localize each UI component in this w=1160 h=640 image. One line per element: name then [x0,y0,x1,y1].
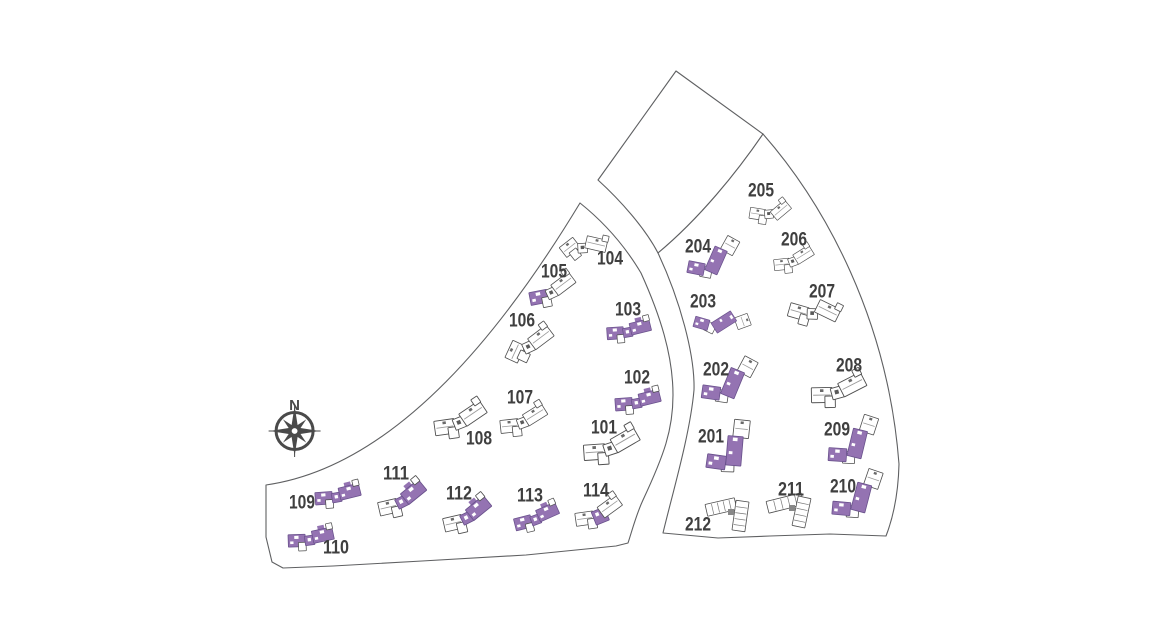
svg-text:201: 201 [698,427,724,448]
svg-text:103: 103 [615,300,641,321]
svg-text:111: 111 [383,464,409,485]
svg-text:210: 210 [830,477,856,498]
svg-text:212: 212 [685,515,711,536]
svg-text:204: 204 [685,237,711,258]
svg-text:104: 104 [597,249,623,270]
svg-text:203: 203 [690,292,716,313]
svg-text:206: 206 [781,230,807,251]
svg-text:107: 107 [507,388,533,409]
svg-text:205: 205 [748,181,774,202]
svg-text:209: 209 [824,420,850,441]
svg-text:102: 102 [624,368,650,389]
svg-text:109: 109 [289,493,315,514]
svg-text:112: 112 [446,484,472,505]
svg-text:113: 113 [517,486,543,507]
svg-text:110: 110 [323,538,349,559]
svg-text:101: 101 [591,418,617,439]
svg-text:105: 105 [541,262,567,283]
svg-text:208: 208 [836,356,862,377]
svg-text:106: 106 [509,311,535,332]
svg-text:108: 108 [466,429,492,450]
svg-text:114: 114 [583,481,609,502]
svg-text:202: 202 [703,360,729,381]
svg-text:211: 211 [778,480,804,501]
svg-text:207: 207 [809,282,835,303]
